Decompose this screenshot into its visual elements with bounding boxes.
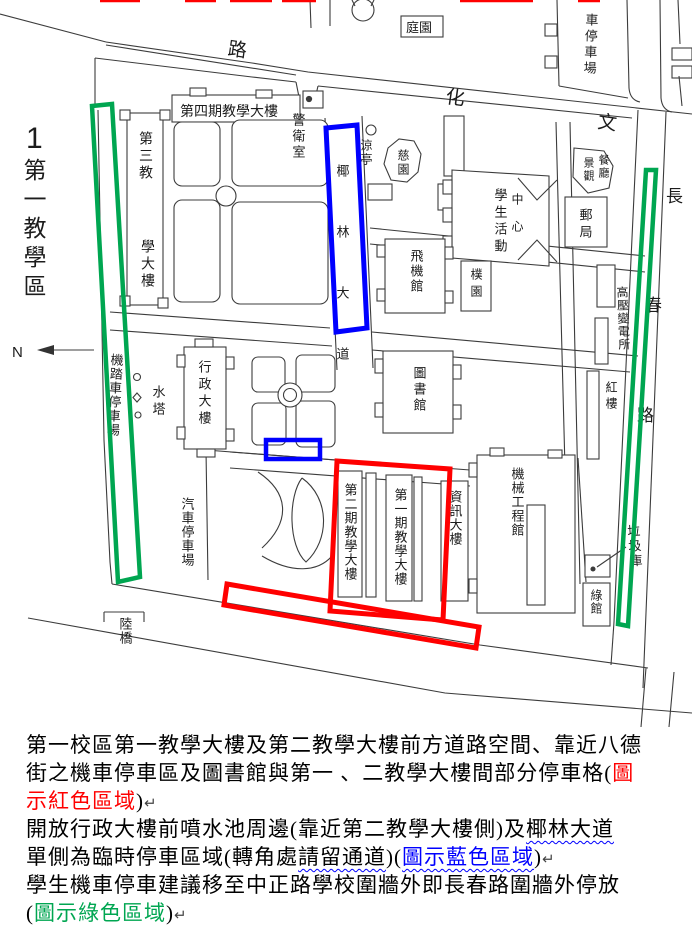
landscape-label: 景觀 xyxy=(582,157,595,183)
red-building-label: 紅樓 xyxy=(604,381,618,413)
green-hall-label: 綠館 xyxy=(589,589,603,615)
restaurant-label: 餐廳 xyxy=(597,153,610,180)
mech-eng-hall-label: 機械工程館 xyxy=(510,467,525,537)
note-text: )( xyxy=(386,845,402,869)
road-wenhua-wen: 文 xyxy=(596,111,618,135)
return-mark: ↵ xyxy=(542,852,555,868)
note-text: 第一校區第一教學大樓及第二教學大樓前方道路空間、靠近八德 xyxy=(26,733,642,757)
car-parking-label: 汽車停車場 xyxy=(180,497,195,567)
note-text: 學生機車停車建議移至中正路學校圍牆外即長春路圍牆外停放 xyxy=(26,873,620,897)
aviation-hall-label: 飛機館 xyxy=(409,249,424,294)
road-wenhua-hua: 化 xyxy=(444,86,466,110)
note-line-6: 學生機車停車建議移至中正路學校圍牆外即長春路圍牆外停放 xyxy=(26,871,692,899)
scanned-notice-page: N 1 第一教學區 路 化 文 長 春 路 庭園 車停車場 第四期教學大樓 警衛… xyxy=(0,0,692,929)
hv-substation-label: 高壓變電所 xyxy=(615,284,631,351)
note-text-wavy: 椰林大道 xyxy=(526,817,614,841)
area-number: 1 xyxy=(26,122,43,155)
teaching-bldg-1-label: 第一期教學大樓 xyxy=(393,488,408,586)
teaching-bldg-3-label-upper: 第三教 xyxy=(138,130,154,182)
campus-map-svg: N 1 第一教學區 路 化 文 長 春 路 庭園 車停車場 第四期教學大樓 警衛… xyxy=(0,0,692,727)
note-text: 單側為臨時停車區域(轉角處 xyxy=(26,845,298,869)
note-line-7: (圖示綠色區域)↵ xyxy=(26,899,692,927)
guard-room-label: 警衛室 xyxy=(291,112,306,161)
note-text-red: 示紅色區域 xyxy=(26,789,136,813)
note-line-3: 示紅色區域)↵ xyxy=(26,787,692,815)
pu-garden-label: 樸園 xyxy=(469,267,483,302)
note-text: ) xyxy=(534,845,542,869)
garden-court-label: 庭園 xyxy=(406,20,432,35)
note-text-blue: 圖示藍色區域 xyxy=(402,845,534,869)
yehlin-boulevard-label: 椰林大道 xyxy=(335,164,350,408)
note-line-5: 單側為臨時停車區域(轉角處請留通道)(圖示藍色區域)↵ xyxy=(26,843,692,871)
area-name: 第一教學區 xyxy=(20,158,47,303)
note-text: 開放行政大樓前噴水池周邊(靠近第二教學大樓側)及 xyxy=(26,817,526,841)
road-wenhua-lu: 路 xyxy=(226,38,248,62)
water-tower-label: 水塔 xyxy=(151,385,166,419)
ci-garden-label: 慈園 xyxy=(396,148,410,177)
north-label: N xyxy=(12,344,23,361)
student-activity-label: 學生活動 xyxy=(493,188,508,256)
teaching-bldg-4-label: 第四期教學大樓 xyxy=(180,103,278,119)
notice-text: 第一校區第一教學大樓及第二教學大樓前方道路空間、靠近八德 街之機車停車區及圖書館… xyxy=(0,727,692,927)
note-text: 街之機車停車區及圖書館與第一 、二教學大樓間部分停車格( xyxy=(26,761,612,785)
return-mark: ↵ xyxy=(174,908,187,924)
post-office-label: 郵局 xyxy=(578,208,593,242)
parking-northeast-label: 車停車場 xyxy=(581,13,598,77)
note-text-wavy: 請留通道 xyxy=(298,845,386,869)
road-changchun-chang: 長 xyxy=(666,187,683,206)
center-label: 中心 xyxy=(510,192,524,247)
overpass-label: 陸橋 xyxy=(118,616,133,645)
note-text: ) xyxy=(166,901,174,925)
return-mark: ↵ xyxy=(144,796,157,812)
note-text-green: 圖示綠色區域 xyxy=(34,901,166,925)
campus-map: N 1 第一教學區 路 化 文 長 春 路 庭園 車停車場 第四期教學大樓 警衛… xyxy=(0,0,692,727)
note-line-1: 第一校區第一教學大樓及第二教學大樓前方道路空間、靠近八德 xyxy=(26,731,692,759)
library-label: 圖書館 xyxy=(412,366,427,414)
note-text: ( xyxy=(26,901,34,925)
note-line-4: 開放行政大樓前噴水池周邊(靠近第二教學大樓側)及椰林大道 xyxy=(26,815,692,843)
admin-building-label: 行政大樓 xyxy=(197,360,212,428)
note-line-2: 街之機車停車區及圖書館與第一 、二教學大樓間部分停車格(圖 xyxy=(26,759,692,787)
north-arrow: N xyxy=(12,344,94,361)
teaching-bldg-3-label-lower: 學大樓 xyxy=(140,239,156,290)
note-text: ) xyxy=(136,789,144,813)
teaching-bldg-2-label: 第二期教學大樓 xyxy=(343,483,358,581)
note-text-red: 圖 xyxy=(612,761,634,785)
